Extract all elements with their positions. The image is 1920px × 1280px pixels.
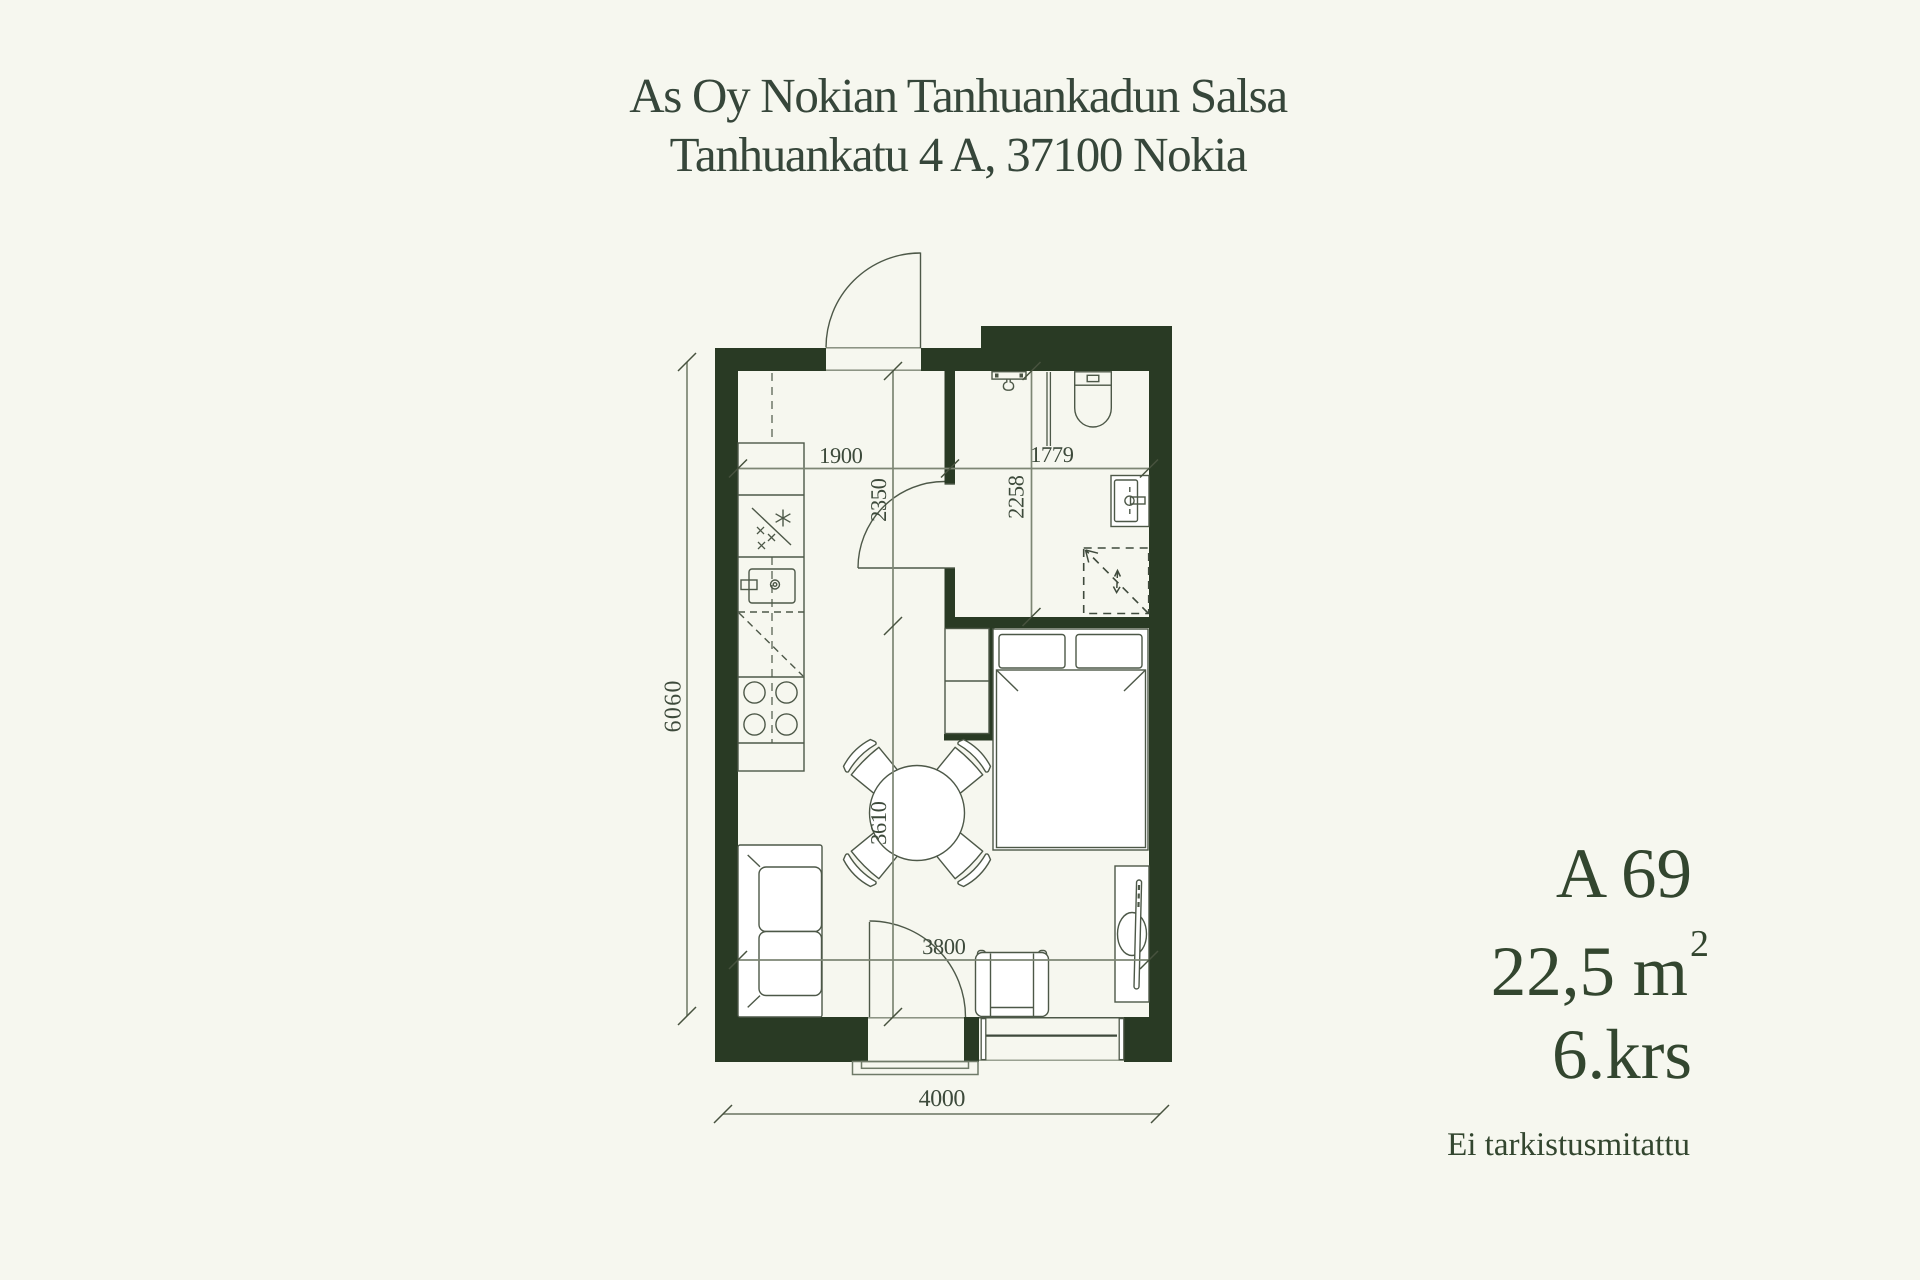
svg-text:6.krs: 6.krs xyxy=(1552,1016,1692,1094)
svg-text:A 69: A 69 xyxy=(1556,835,1692,913)
svg-text:Ei tarkistusmitattu: Ei tarkistusmitattu xyxy=(1447,1127,1690,1163)
svg-text:As Oy Nokian Tanhuankadun Sals: As Oy Nokian Tanhuankadun Salsa xyxy=(629,68,1288,123)
svg-text:22,5 m: 22,5 m xyxy=(1491,933,1688,1011)
svg-text:2: 2 xyxy=(1690,923,1709,965)
svg-text:Tanhuankatu 4 A, 37100 Nokia: Tanhuankatu 4 A, 37100 Nokia xyxy=(670,127,1248,182)
